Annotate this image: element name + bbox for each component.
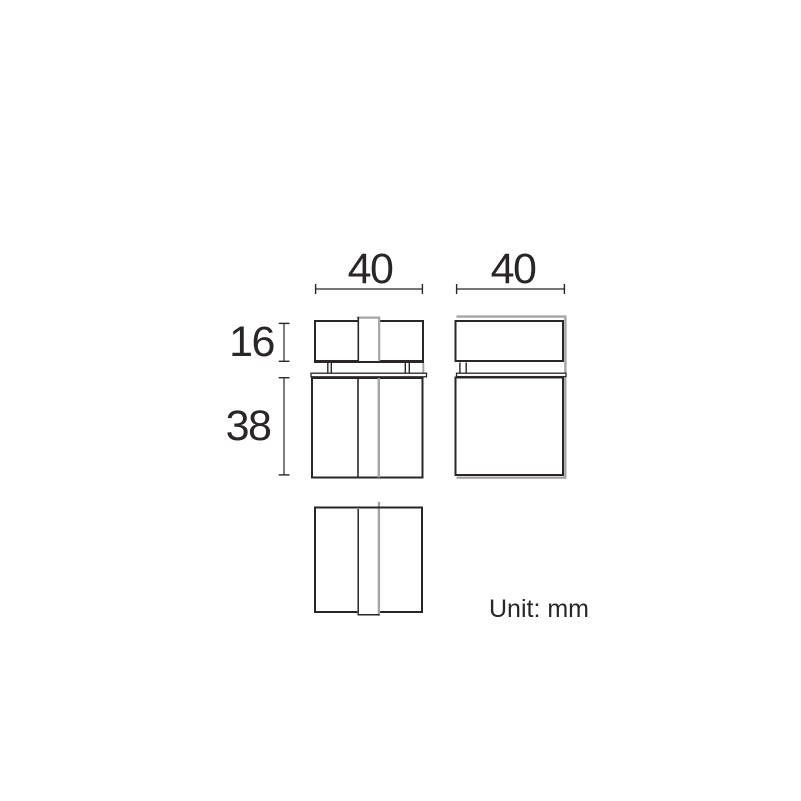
side-depth-label: 40 <box>491 245 536 293</box>
front-bottom-block <box>312 378 423 478</box>
height-dimension-16: 16 <box>229 318 289 366</box>
front-view <box>311 317 427 478</box>
width-dimension-front: 40 <box>315 245 423 294</box>
front-shelf-plate <box>311 373 427 377</box>
width-dimension-side: 40 <box>456 245 565 294</box>
bottom-view <box>315 502 422 616</box>
front-width-label: 40 <box>348 245 393 293</box>
top-section-height-label: 16 <box>229 318 274 366</box>
side-shelf-plate <box>457 373 567 376</box>
bottom-center-strip <box>357 509 379 615</box>
shelf-support-dimension-drawing: 40 40 16 38 <box>0 0 801 801</box>
height-dimension-38: 38 <box>226 377 290 475</box>
unit-label: Unit: mm <box>489 595 589 623</box>
front-center-strip <box>358 317 380 362</box>
side-view <box>456 317 567 478</box>
bottom-section-height-label: 38 <box>226 402 271 450</box>
side-top-block <box>456 321 564 361</box>
technical-drawing-canvas: 40 40 16 38 <box>0 0 801 801</box>
side-bottom-block <box>456 378 564 476</box>
